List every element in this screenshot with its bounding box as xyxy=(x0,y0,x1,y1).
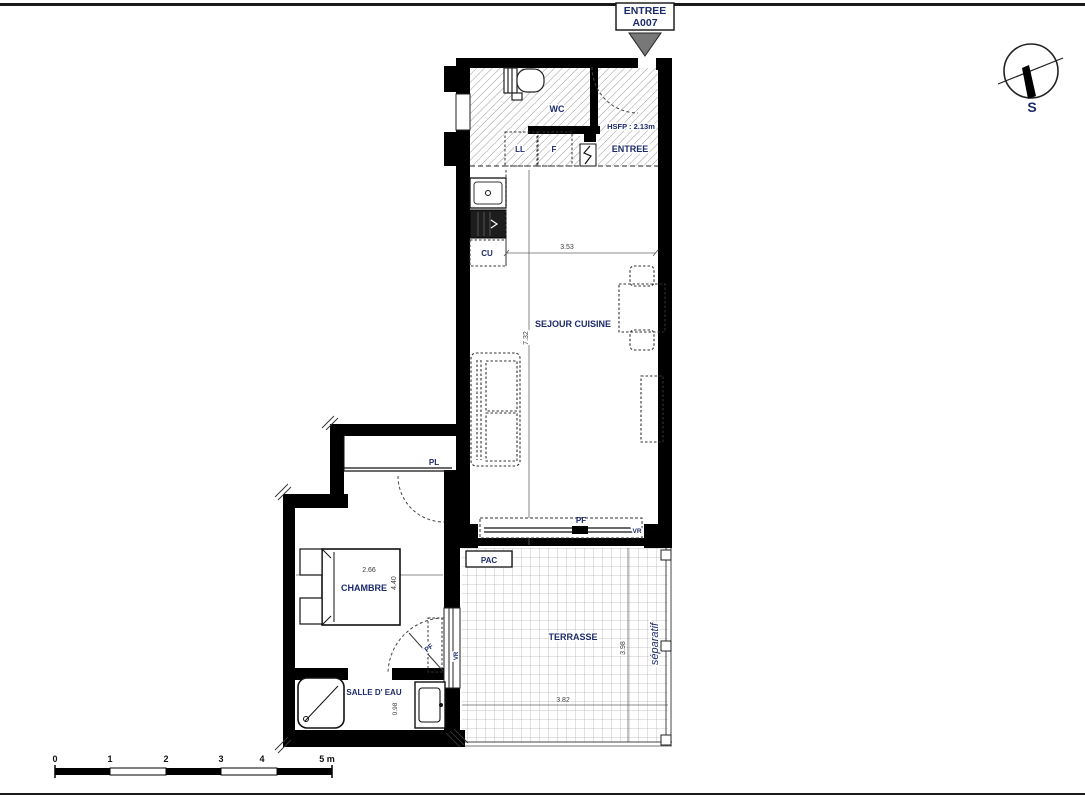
scale-tick-1: 1 xyxy=(107,754,112,764)
room-label-wc: WC xyxy=(550,104,565,114)
dim-salle-deau-depth: 0.98 xyxy=(392,702,399,715)
sheet-bottom-border xyxy=(0,793,1085,795)
scale-tick-3: 3 xyxy=(218,754,223,764)
dim-sejour-length: 7.32 xyxy=(523,331,530,345)
scale-tick-0: 0 xyxy=(52,754,57,764)
dim-chambre-width: 2.66 xyxy=(362,567,376,574)
scale-tick-2: 2 xyxy=(163,754,168,764)
south-label: S xyxy=(1027,99,1036,115)
nightstand xyxy=(300,598,322,624)
label-pac: PAC xyxy=(481,556,498,565)
cooktop-unit xyxy=(470,210,506,238)
chambre-door-arc xyxy=(398,476,444,522)
north-indicator: S xyxy=(998,44,1063,115)
label-pl: PL xyxy=(429,458,439,467)
room-label-sejour: SEJOUR CUISINE xyxy=(535,319,611,329)
scale-bar: 0 1 2 3 4 5 m xyxy=(52,754,334,778)
room-label-salle-deau: SALLE D' EAU xyxy=(346,688,401,697)
room-label-terrasse: TERRASSE xyxy=(548,632,597,642)
fence-post xyxy=(661,550,671,560)
sejour-window xyxy=(480,518,642,538)
floor-plan: ENTREE A007 S WC HSFP : 2.13m ENTREE LL … xyxy=(0,0,1085,800)
nightstand xyxy=(300,549,322,575)
chair xyxy=(630,266,654,286)
entry-arrow-icon xyxy=(629,33,661,56)
sofa xyxy=(471,353,520,466)
fence-post xyxy=(661,735,671,745)
label-vr-sejour: VR xyxy=(632,528,641,535)
washbasin xyxy=(415,682,445,728)
terrace-floor xyxy=(462,548,672,746)
label-vr-chambre: VR xyxy=(454,651,460,660)
dim-chambre-length: 4.40 xyxy=(391,576,398,590)
dim-terrasse-length: 3.98 xyxy=(620,641,627,655)
floor-plan-drawing: ENTREE A007 S WC HSFP : 2.13m ENTREE LL … xyxy=(0,0,1085,800)
window-swing-arc xyxy=(388,618,444,674)
label-cu: CU xyxy=(481,249,493,258)
fence-post xyxy=(661,641,671,651)
label-pf-chambre: PF xyxy=(424,642,436,653)
hsfp-annotation: HSFP : 2.13m xyxy=(607,122,655,131)
label-separatif: séparatif xyxy=(649,622,661,665)
sheet-top-border xyxy=(0,3,1085,6)
chair xyxy=(630,330,654,350)
dim-sejour-width: 3.53 xyxy=(560,244,574,251)
entry-marker-line2: A007 xyxy=(632,17,657,29)
room-label-entree: ENTREE xyxy=(612,144,649,154)
scale-tick-5: 5 m xyxy=(319,754,335,764)
dim-terrasse-width: 3.82 xyxy=(556,697,570,704)
label-f: F xyxy=(552,145,557,154)
entry-marker: ENTREE A007 xyxy=(616,3,674,56)
room-label-chambre: CHAMBRE xyxy=(341,583,387,593)
shower xyxy=(298,678,344,728)
label-pf-sejour: PF xyxy=(576,516,586,525)
entry-marker-line1: ENTREE xyxy=(624,5,667,17)
duct-shaft xyxy=(456,94,470,130)
label-ll: LL xyxy=(515,145,525,154)
scale-tick-4: 4 xyxy=(259,754,264,764)
